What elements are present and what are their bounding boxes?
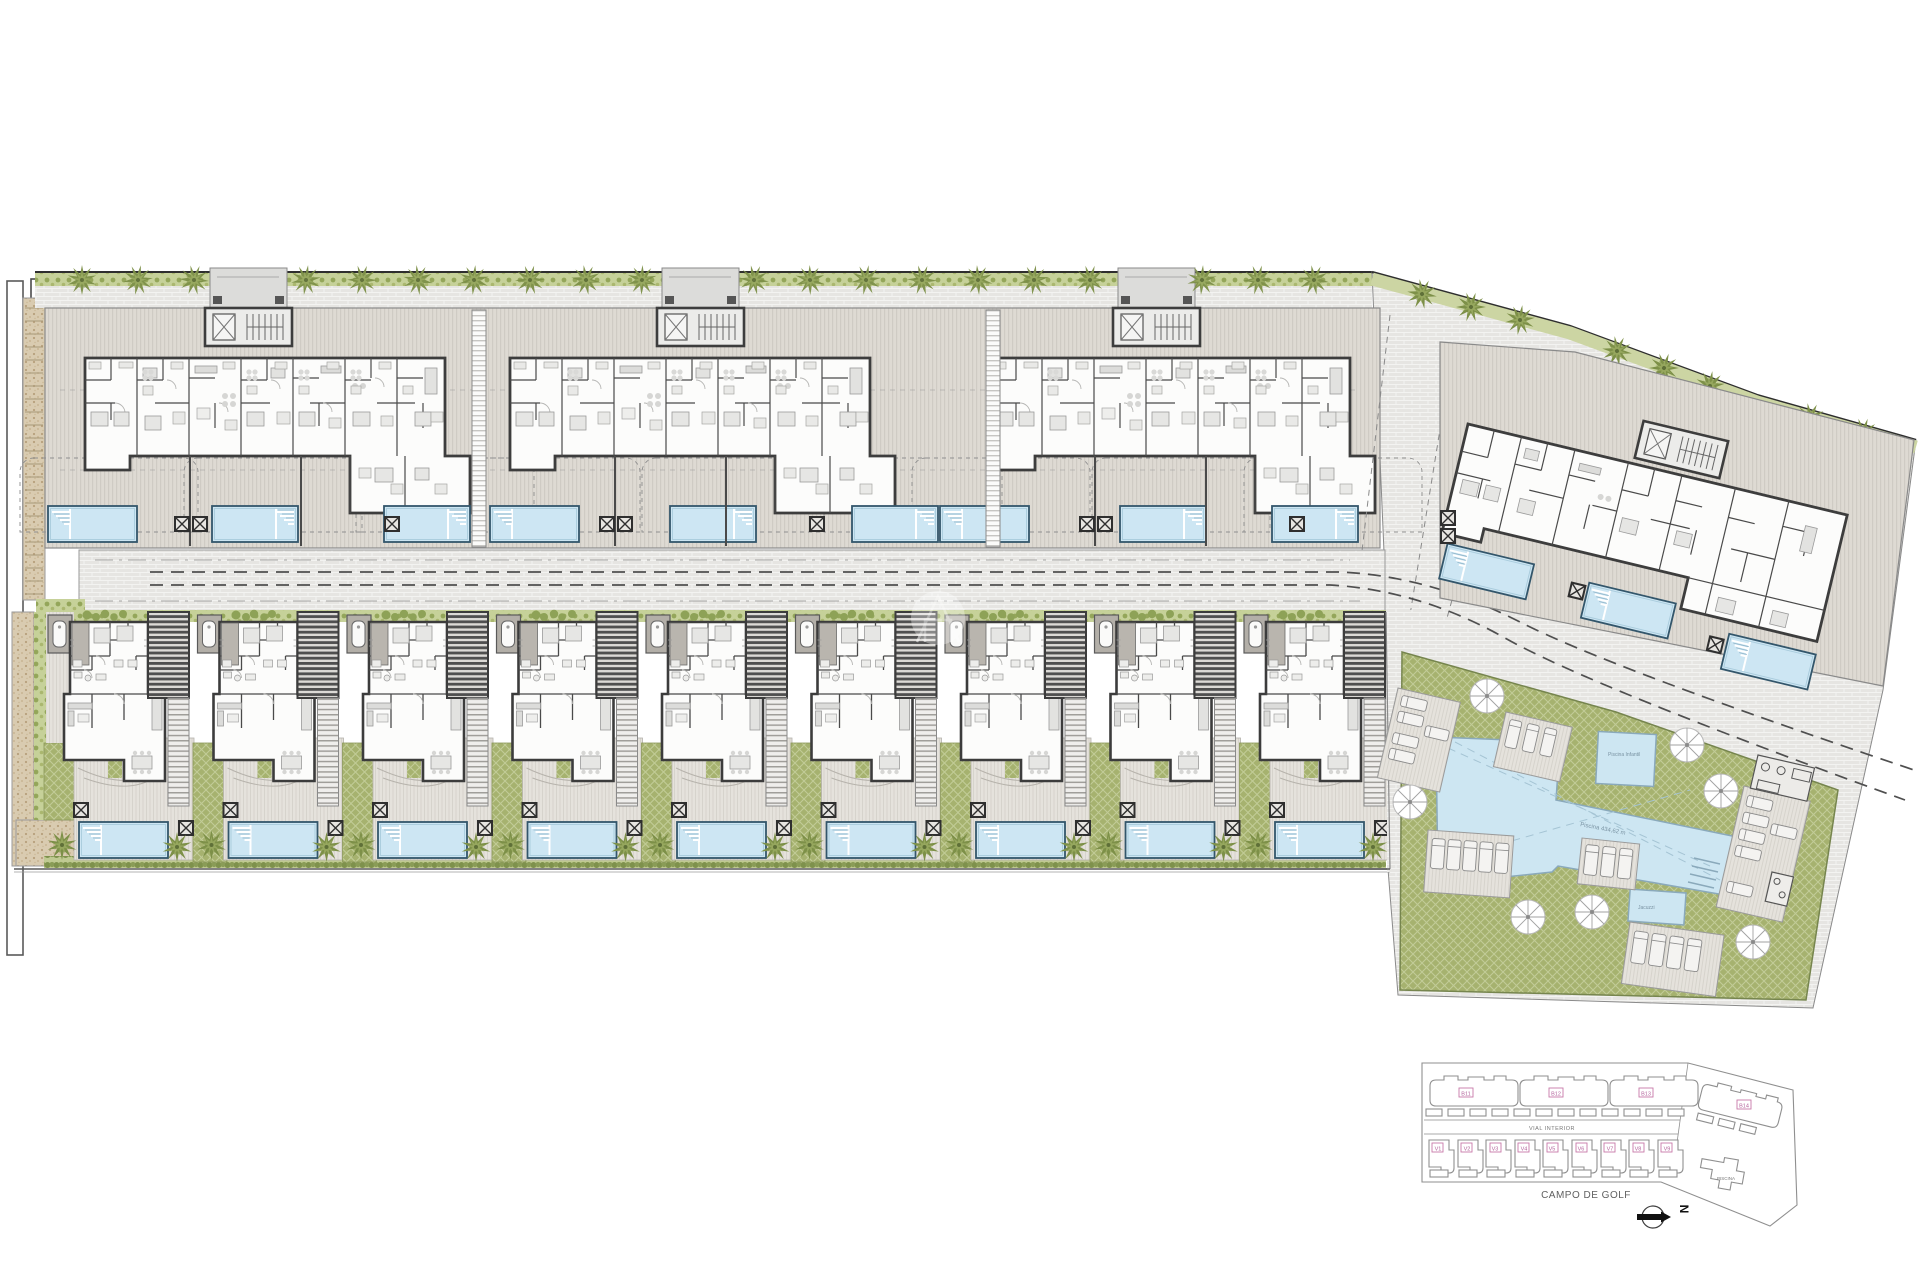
svg-text:V8: V8 [1635, 1147, 1642, 1153]
svg-text:Piscina Infantil: Piscina Infantil [1608, 752, 1640, 758]
svg-text:B12: B12 [1551, 1092, 1561, 1098]
svg-text:V4: V4 [1521, 1147, 1528, 1153]
svg-text:PISCINA: PISCINA [1717, 1176, 1735, 1181]
svg-text:V7: V7 [1607, 1147, 1614, 1153]
svg-text:V3: V3 [1492, 1147, 1499, 1153]
svg-text:V6: V6 [1578, 1147, 1585, 1153]
svg-text:V1: V1 [1435, 1147, 1442, 1153]
svg-text:V2: V2 [1464, 1147, 1471, 1153]
svg-text:B14: B14 [1739, 1104, 1749, 1110]
svg-text:B11: B11 [1461, 1092, 1470, 1098]
svg-text:B13: B13 [1641, 1092, 1651, 1098]
svg-text:N: N [1677, 1205, 1691, 1214]
svg-text:VIAL INTERIOR: VIAL INTERIOR [1529, 1126, 1575, 1132]
svg-text:CAMPO DE GOLF: CAMPO DE GOLF [1541, 1190, 1631, 1201]
svg-text:V5: V5 [1549, 1147, 1556, 1153]
svg-text:Jacuzzi: Jacuzzi [1638, 905, 1655, 911]
svg-text:V9: V9 [1664, 1147, 1671, 1153]
